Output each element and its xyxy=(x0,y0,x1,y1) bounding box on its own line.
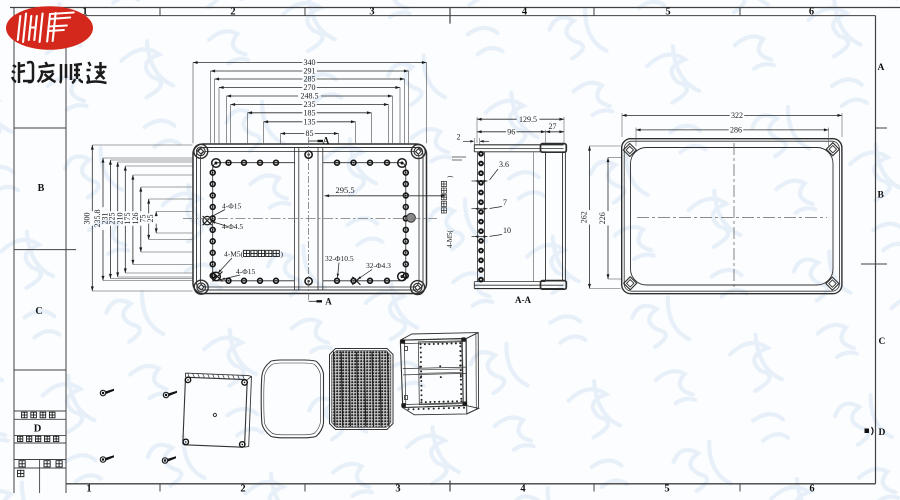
svg-text:135: 135 xyxy=(304,117,316,126)
svg-text:1: 1 xyxy=(86,484,91,495)
svg-text:226: 226 xyxy=(598,212,607,224)
svg-text:4: 4 xyxy=(520,484,526,495)
svg-text:4-Φ15: 4-Φ15 xyxy=(222,201,241,210)
svg-text:96: 96 xyxy=(507,127,515,136)
svg-text:2: 2 xyxy=(457,133,461,142)
svg-text:322: 322 xyxy=(731,111,743,120)
svg-text:5: 5 xyxy=(664,484,669,495)
svg-text:6: 6 xyxy=(809,7,814,18)
svg-text:3: 3 xyxy=(395,484,400,495)
svg-text:B: B xyxy=(878,191,885,201)
svg-text:A: A xyxy=(878,63,885,73)
svg-text:4-M5(: 4-M5( xyxy=(224,250,244,259)
svg-text:C: C xyxy=(35,306,42,317)
svg-text:4-Φ15: 4-Φ15 xyxy=(236,267,255,276)
svg-text:6: 6 xyxy=(809,484,814,495)
svg-text:4-M5(: 4-M5( xyxy=(446,229,454,248)
svg-text:A-A: A-A xyxy=(515,295,531,305)
svg-text:3.6: 3.6 xyxy=(499,160,509,169)
svg-text:10: 10 xyxy=(503,226,511,235)
svg-text:85: 85 xyxy=(306,129,314,138)
svg-text:3: 3 xyxy=(369,7,374,18)
svg-text:27: 27 xyxy=(549,122,557,131)
svg-text:262: 262 xyxy=(580,211,589,223)
svg-text:4-Φ4.5: 4-Φ4.5 xyxy=(222,222,243,231)
svg-text:32-Φ4.3: 32-Φ4.3 xyxy=(366,261,391,270)
svg-text:2: 2 xyxy=(240,484,245,495)
svg-text:295.5: 295.5 xyxy=(335,185,354,195)
svg-text:2: 2 xyxy=(230,7,235,18)
svg-text:7: 7 xyxy=(503,198,507,207)
svg-text:A: A xyxy=(325,297,332,307)
svg-text:D: D xyxy=(879,428,886,438)
svg-text:25: 25 xyxy=(146,215,155,223)
svg-text:5: 5 xyxy=(665,7,670,18)
svg-text:286: 286 xyxy=(730,126,742,135)
svg-text:32-Φ10.5: 32-Φ10.5 xyxy=(325,254,354,263)
svg-text:D: D xyxy=(34,424,42,435)
svg-text:A: A xyxy=(323,136,330,146)
svg-text:129.5: 129.5 xyxy=(519,115,537,124)
svg-text:C: C xyxy=(879,337,886,347)
svg-text:300: 300 xyxy=(82,213,91,225)
svg-text:B: B xyxy=(38,183,45,194)
svg-text:185: 185 xyxy=(304,108,316,117)
svg-text:4: 4 xyxy=(522,7,528,18)
